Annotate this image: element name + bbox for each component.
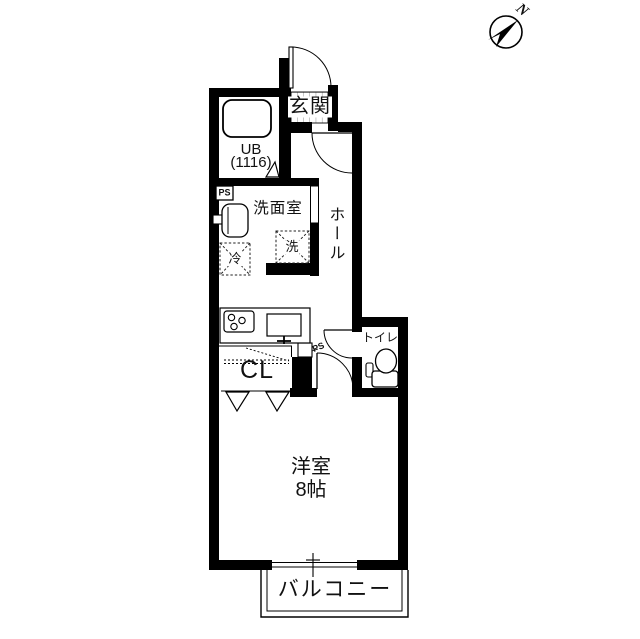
pipe-space-label-top: PS <box>218 188 230 197</box>
western-room-size-label: 8帖 <box>291 479 331 502</box>
refrigerator-label: 冷 <box>227 252 242 266</box>
floor-plan: 玄関 UB (1116) PS 洗面室 洗 冷 ホール トイレ CL PS 洋室… <box>0 0 640 639</box>
washroom-label: 洗面室 <box>253 201 303 217</box>
entrance-label: 玄関 <box>288 97 332 118</box>
stove-icon <box>224 311 254 332</box>
closet-folding-doors-icon <box>221 391 290 411</box>
unit-bath-block: UB (1116) <box>230 143 271 169</box>
western-room-block: 洋室 8帖 <box>291 456 331 502</box>
toilet-door-icon <box>324 330 352 358</box>
bedroom-door-icon <box>317 353 353 389</box>
window-icon <box>272 553 357 577</box>
unit-bath-size-label: (1116) <box>230 156 271 169</box>
washing-machine-label: 洗 <box>284 240 299 254</box>
entrance-door-icon <box>289 47 331 88</box>
closet-label: CL <box>240 357 274 383</box>
compass-icon <box>488 16 522 48</box>
bathtub-icon <box>223 100 271 137</box>
western-room-label: 洋室 <box>291 456 331 479</box>
hall-label: ホール <box>326 206 343 263</box>
toilet-label: トイレ <box>362 332 398 345</box>
washroom-sliding-door-icon <box>311 186 319 223</box>
balcony-label: バルコニー <box>278 579 393 601</box>
toilet-fixture-icon <box>366 349 398 387</box>
hall-door-icon <box>312 133 352 173</box>
